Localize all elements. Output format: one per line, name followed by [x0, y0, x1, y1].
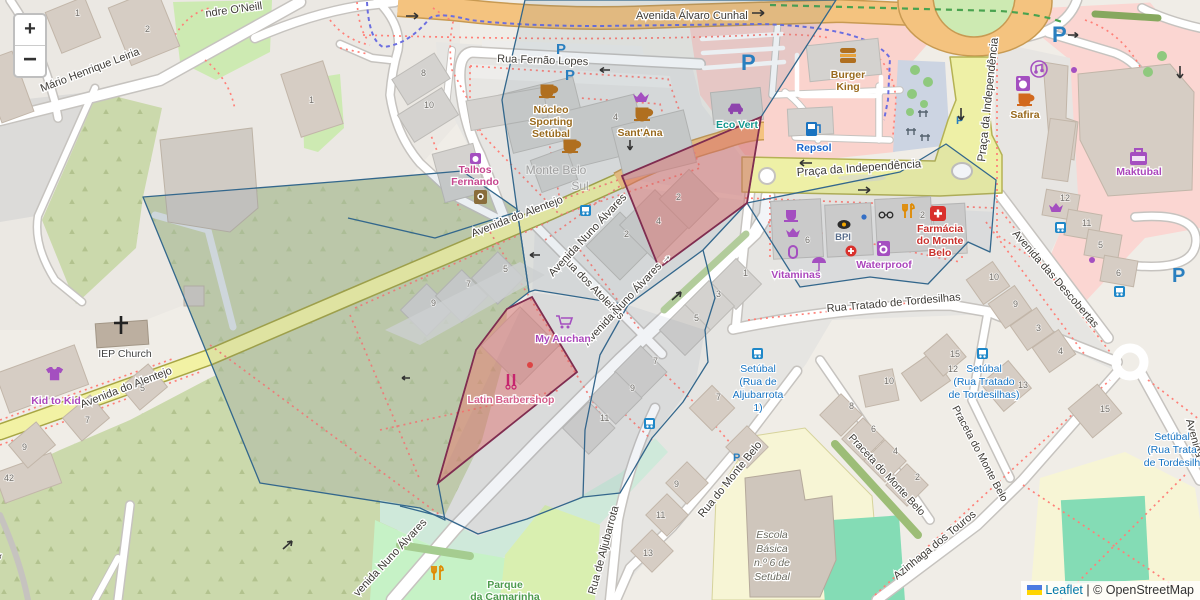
- svg-text:Latin Barbershop: Latin Barbershop: [468, 394, 555, 406]
- svg-text:3: 3: [716, 289, 721, 299]
- svg-text:Setúbal: Setúbal: [740, 363, 776, 375]
- svg-text:6: 6: [805, 235, 810, 245]
- svg-text:Setúbal: Setúbal: [1154, 431, 1190, 443]
- svg-text:(Rua de: (Rua de: [739, 376, 777, 388]
- svg-text:BPI: BPI: [835, 232, 851, 243]
- svg-text:1: 1: [743, 268, 748, 278]
- svg-text:5: 5: [1098, 240, 1103, 250]
- svg-text:9: 9: [674, 479, 679, 489]
- svg-text:(Rua Trata: (Rua Trata: [1147, 444, 1197, 456]
- svg-text:Belo: Belo: [929, 247, 952, 259]
- svg-text:P: P: [956, 115, 963, 127]
- svg-text:7: 7: [85, 415, 90, 425]
- svg-text:2: 2: [676, 192, 681, 202]
- svg-text:Setúbal: Setúbal: [532, 128, 570, 140]
- svg-text:Sul: Sul: [571, 179, 588, 193]
- svg-text:My Auchan: My Auchan: [535, 333, 591, 345]
- svg-text:10: 10: [884, 376, 894, 386]
- svg-text:Waterproof: Waterproof: [856, 259, 912, 271]
- svg-text:da Camarinha: da Camarinha: [470, 591, 540, 600]
- svg-text:n.º 6 de: n.º 6 de: [754, 557, 790, 569]
- svg-text:2: 2: [915, 472, 920, 482]
- svg-text:Aljubarrota: Aljubarrota: [733, 389, 784, 401]
- svg-text:Escola: Escola: [756, 529, 788, 541]
- svg-text:King: King: [836, 81, 859, 93]
- svg-text:5: 5: [694, 313, 699, 323]
- svg-text:de Tordesilh: de Tordesilh: [1144, 457, 1200, 469]
- svg-text:10: 10: [989, 272, 999, 282]
- svg-text:Repsol: Repsol: [796, 142, 831, 154]
- svg-text:1: 1: [75, 8, 80, 18]
- svg-text:Maktubal: Maktubal: [1116, 166, 1162, 178]
- svg-text:11: 11: [600, 413, 609, 423]
- svg-text:1): 1): [753, 402, 762, 414]
- svg-text:Setúbal: Setúbal: [754, 571, 790, 583]
- svg-text:11: 11: [1082, 218, 1091, 228]
- svg-text:4: 4: [893, 446, 898, 456]
- svg-text:15: 15: [950, 349, 960, 359]
- svg-text:1: 1: [309, 95, 314, 105]
- svg-text:11: 11: [656, 510, 665, 520]
- svg-text:P: P: [741, 50, 756, 75]
- svg-text:4: 4: [1058, 346, 1063, 356]
- svg-text:3: 3: [1036, 323, 1041, 333]
- svg-text:Núcleo: Núcleo: [533, 104, 568, 116]
- svg-text:2: 2: [920, 210, 925, 220]
- svg-text:Burger: Burger: [831, 69, 865, 81]
- svg-text:4: 4: [613, 112, 618, 122]
- svg-text:4: 4: [656, 216, 661, 226]
- svg-text:9: 9: [630, 383, 635, 393]
- svg-text:9: 9: [22, 442, 27, 452]
- svg-text:Parque: Parque: [487, 579, 523, 591]
- svg-text:Sant'Ana: Sant'Ana: [617, 127, 662, 139]
- svg-text:Monte Belo: Monte Belo: [526, 163, 587, 177]
- svg-text:12: 12: [1060, 193, 1070, 203]
- svg-text:P: P: [565, 67, 575, 84]
- svg-text:42: 42: [4, 473, 14, 483]
- svg-text:9: 9: [431, 298, 436, 308]
- svg-text:Básica: Básica: [756, 543, 788, 555]
- svg-text:P: P: [1172, 265, 1185, 287]
- svg-text:8: 8: [849, 401, 854, 411]
- svg-text:13: 13: [643, 548, 653, 558]
- svg-text:Fernando: Fernando: [451, 176, 499, 188]
- svg-text:de Tordesilhas): de Tordesilhas): [948, 389, 1019, 401]
- svg-text:do Monte: do Monte: [917, 235, 964, 247]
- svg-text:15: 15: [1100, 404, 1110, 414]
- svg-text:(Rua Tratado: (Rua Tratado: [953, 376, 1014, 388]
- svg-text:7: 7: [466, 279, 471, 289]
- svg-text:7: 7: [716, 392, 721, 402]
- svg-text:Talhos: Talhos: [458, 164, 491, 176]
- svg-text:2: 2: [624, 229, 629, 239]
- svg-text:10: 10: [424, 100, 434, 110]
- svg-text:Eco Vert: Eco Vert: [716, 119, 759, 131]
- svg-text:Safira: Safira: [1010, 109, 1039, 121]
- svg-text:Farmácia: Farmácia: [917, 223, 963, 235]
- svg-text:P: P: [1052, 22, 1067, 47]
- svg-text:5: 5: [503, 264, 508, 274]
- svg-text:9: 9: [1013, 299, 1018, 309]
- svg-text:2: 2: [145, 24, 150, 34]
- svg-text:Sporting: Sporting: [529, 116, 572, 128]
- svg-text:6: 6: [871, 424, 876, 434]
- svg-text:7: 7: [653, 356, 658, 366]
- svg-text:Vitaminas: Vitaminas: [771, 269, 821, 281]
- svg-text:Kid to Kid: Kid to Kid: [31, 395, 81, 407]
- svg-text:6: 6: [1116, 268, 1121, 278]
- svg-text:5: 5: [140, 383, 145, 393]
- svg-text:8: 8: [421, 68, 426, 78]
- svg-text:Avenida Álvaro Cunhal: Avenida Álvaro Cunhal: [636, 9, 748, 22]
- svg-text:12: 12: [948, 364, 958, 374]
- svg-text:Setúbal: Setúbal: [966, 363, 1002, 375]
- svg-text:IEP Church: IEP Church: [98, 348, 152, 360]
